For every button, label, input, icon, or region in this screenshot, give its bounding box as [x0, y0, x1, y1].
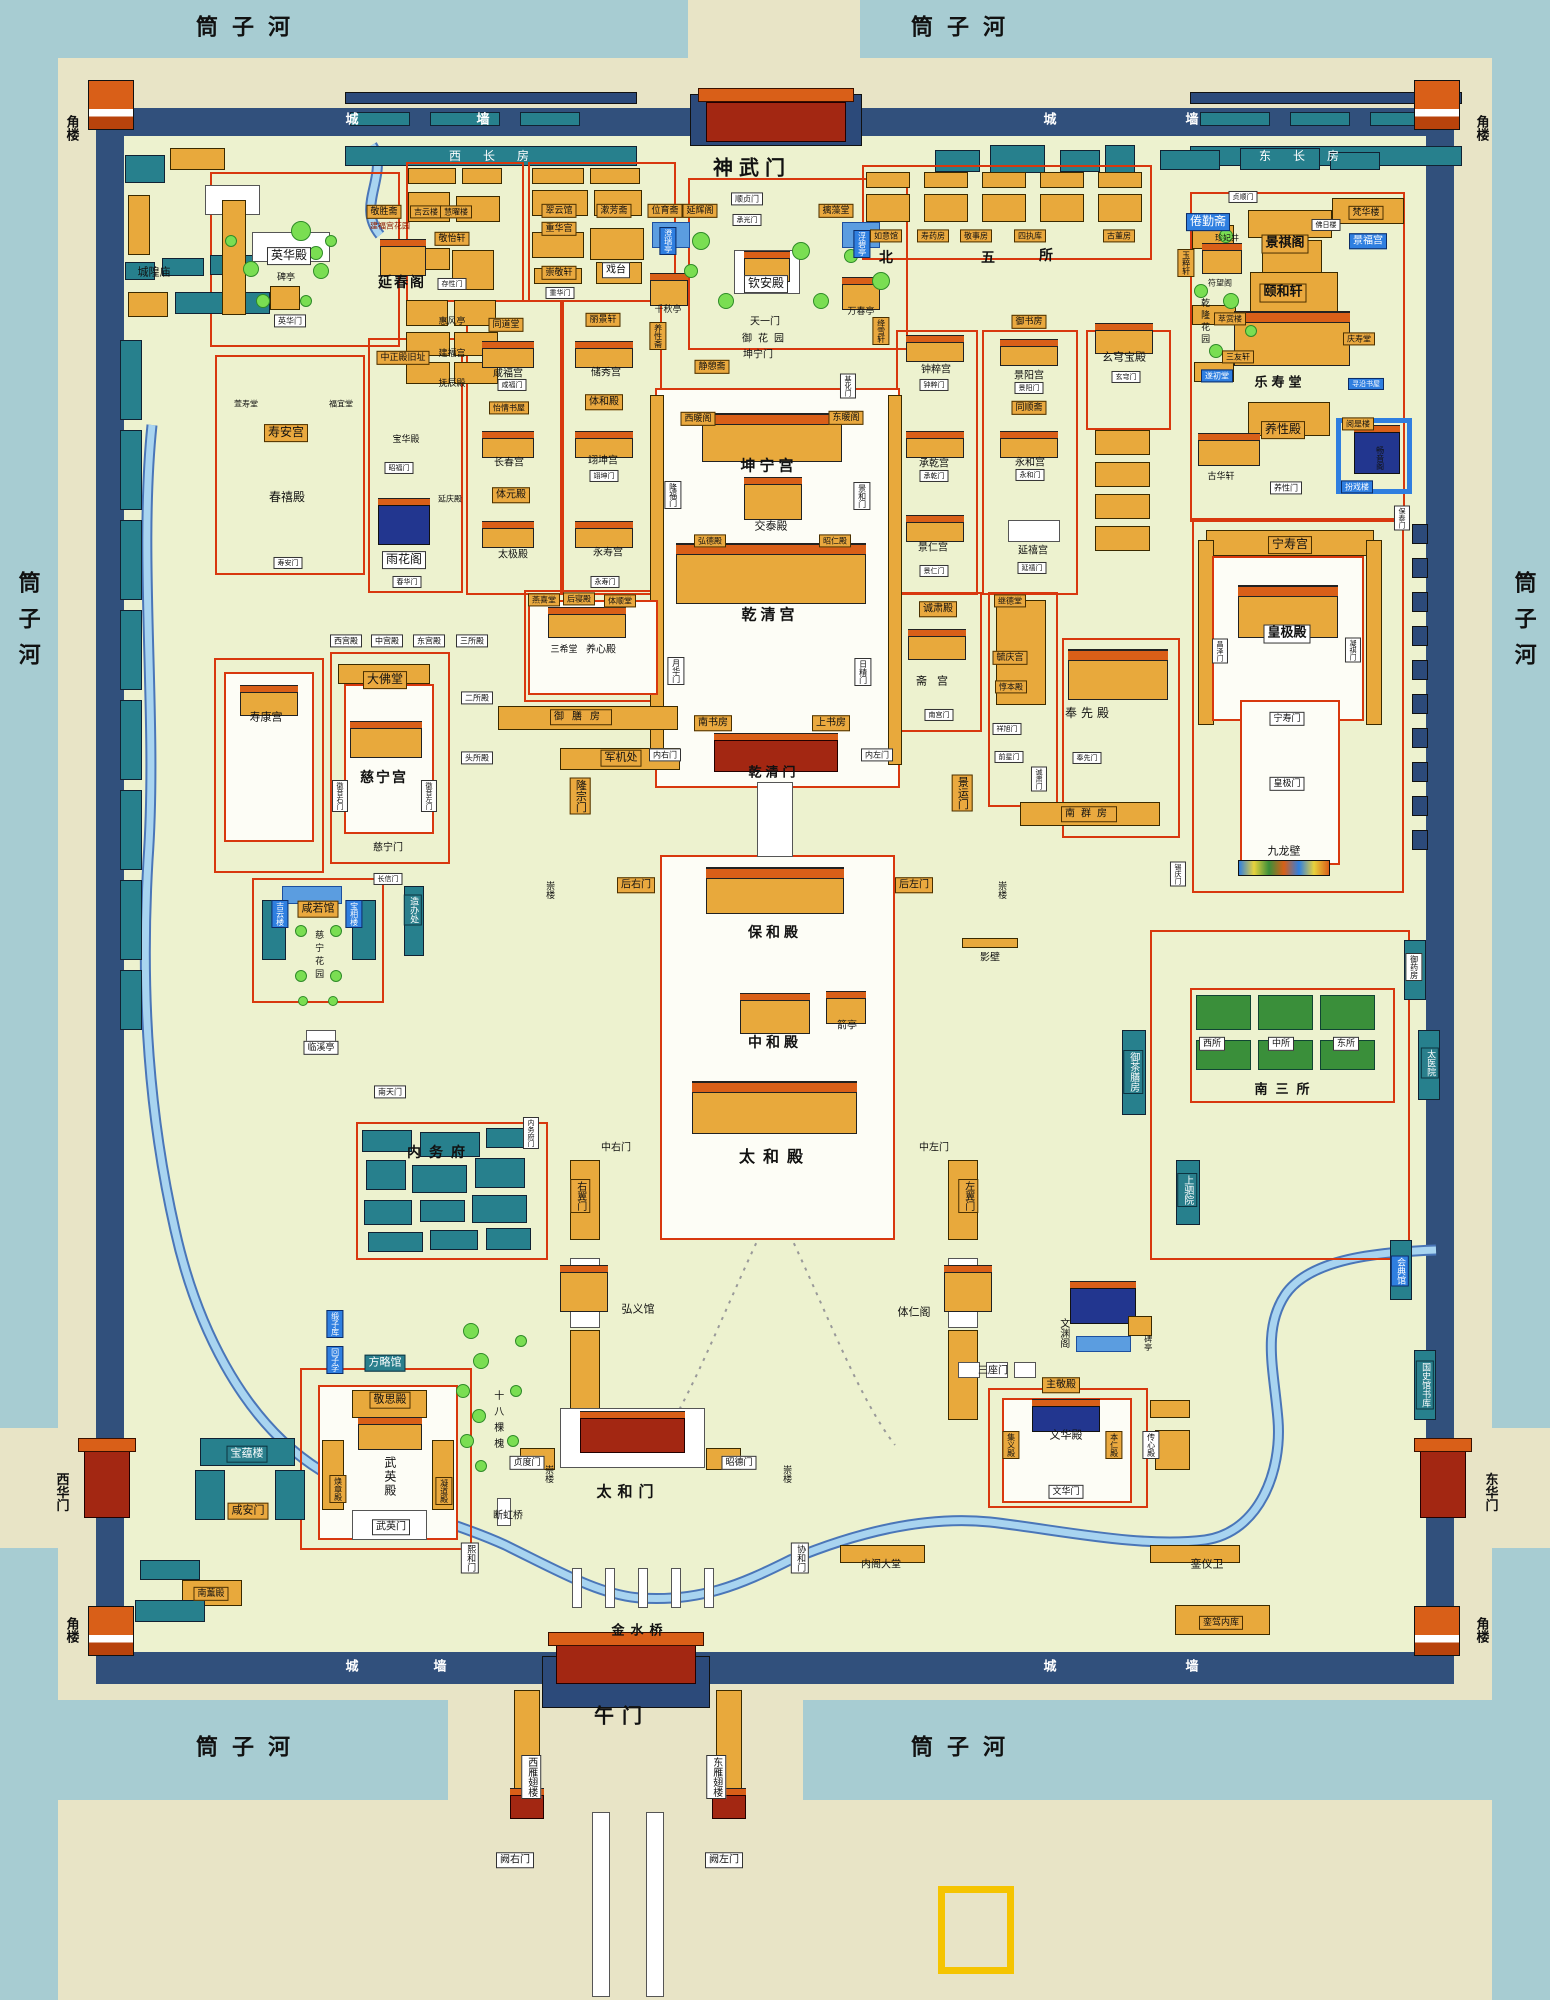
map-label: 如意馆: [870, 229, 902, 242]
map-label: 午门: [594, 1705, 650, 1728]
building-block: [270, 286, 300, 310]
map-label: 碑亭: [277, 273, 295, 283]
building-block: [866, 194, 910, 222]
map-label: 浮碧亭: [853, 230, 870, 258]
map-label: 所: [1039, 248, 1053, 264]
building-block: [125, 155, 165, 183]
map-label: 头所殿: [461, 751, 493, 764]
map-label: 西暖阁: [680, 412, 715, 426]
building-block: [650, 280, 688, 306]
building-block: [215, 355, 365, 575]
map-label: 城: [1043, 114, 1056, 129]
building-block: [1202, 250, 1242, 274]
map-label: 武英殿: [382, 1456, 396, 1498]
map-label: 景福宫: [1349, 233, 1387, 249]
map-label: 雨花阁: [382, 551, 426, 569]
building-block: [275, 1470, 305, 1520]
map-label: 前星门: [995, 751, 1024, 763]
tree-icon: [225, 235, 237, 247]
map-label: 本仁殿: [1105, 1431, 1122, 1459]
building-block: [222, 200, 246, 315]
map-label: 武英门: [372, 1519, 410, 1535]
map-label: 乾隆花园: [1199, 298, 1209, 346]
map-label: 慈宁花园: [313, 930, 323, 982]
map-label: 怡情书屋: [489, 401, 529, 414]
map-label: 养心殿: [586, 644, 616, 656]
map-label: 文华殿: [1050, 1430, 1083, 1443]
map-label: 御膳房: [550, 709, 612, 725]
map-label: 凝祺门: [1345, 638, 1361, 663]
map-label: 南群房: [1061, 806, 1117, 822]
building-block: [706, 102, 846, 142]
map-label: 景阳宫: [1014, 370, 1044, 382]
map-label: 咸安门: [228, 1503, 269, 1520]
building-block: [475, 1158, 525, 1188]
map-label: 体元殿: [492, 487, 530, 503]
map-label: 上书房: [812, 715, 850, 731]
map-label: 凝道殿: [435, 1477, 452, 1505]
building-block: [366, 1160, 406, 1190]
map-label: 寿安门: [274, 557, 303, 569]
map-label: 玄穹门: [1112, 371, 1141, 383]
map-label: 诚肃殿: [919, 601, 957, 617]
map-label: 千秋亭: [654, 305, 681, 315]
map-label: 福宜堂: [329, 399, 353, 408]
map-label: 城: [345, 1661, 358, 1676]
building-block: [1412, 796, 1428, 816]
building-block: [1412, 524, 1428, 544]
map-label: 长信门: [374, 873, 403, 885]
building-block: [84, 1446, 130, 1518]
building-block: [362, 1130, 412, 1152]
map-label: 筒子河: [1510, 571, 1535, 679]
tree-icon: [475, 1460, 487, 1472]
map-label: 皇极门: [1269, 777, 1304, 791]
map-label: 熙和门: [461, 1543, 479, 1574]
tree-icon: [1194, 284, 1208, 298]
building-block: [482, 528, 534, 548]
building-block: [120, 430, 142, 510]
building-block: [556, 1640, 696, 1684]
building-block: [580, 1418, 685, 1453]
map-label: 中正殿旧址: [376, 351, 429, 365]
building-block: [1412, 830, 1428, 850]
building-block: [1412, 660, 1428, 680]
map-label: 筒子河: [911, 15, 1019, 40]
map-label: 延春阁: [378, 275, 426, 291]
building-block: [140, 1560, 200, 1580]
map-label: 东宫殿: [413, 634, 445, 647]
map-label: 十八棵槐: [491, 1390, 503, 1454]
tree-icon: [792, 242, 810, 260]
building-block: [906, 522, 964, 542]
map-label: 太和门: [596, 1483, 659, 1500]
map-label: 三座门: [978, 1365, 1008, 1377]
building-block: [1128, 1316, 1152, 1336]
building-block: [462, 168, 502, 184]
map-label: 英华殿: [267, 247, 311, 265]
building-block: [195, 1470, 225, 1520]
map-label: 角楼: [63, 1617, 78, 1643]
building-block: [412, 1165, 467, 1193]
map-label: 承乾门: [920, 470, 949, 482]
map-label: 保泰门: [1394, 506, 1410, 531]
map-label: 乐寿堂: [1254, 377, 1305, 392]
building-block: [482, 348, 534, 368]
map-label: 宝相楼: [345, 900, 362, 928]
map-label: 寿康宫: [250, 712, 283, 725]
map-label: 军机处: [601, 750, 642, 767]
map-label: 日精门: [854, 658, 871, 686]
map-label: 传心殿: [1142, 1431, 1159, 1459]
building-block: [590, 228, 644, 260]
building-block: [592, 1812, 610, 1997]
map-label: 景仁门: [920, 565, 949, 577]
building-block: [866, 172, 910, 188]
map-label: 漱芳斋: [596, 204, 631, 218]
map-label: 养性门: [1270, 481, 1302, 494]
map-label: 阅是楼: [1342, 417, 1374, 430]
building-block: [1098, 194, 1142, 222]
building-block: [605, 1568, 615, 1608]
map-label: 遂初堂: [1201, 369, 1233, 382]
map-label: 中和殿: [748, 1035, 802, 1051]
map-label: 隆福门: [664, 481, 681, 509]
building-block: [1412, 558, 1428, 578]
map-label: 抚辰殿: [438, 379, 465, 389]
building-block: [368, 1232, 423, 1252]
map-label: 永寿宫: [593, 547, 623, 559]
map-label: 焕章殿: [329, 1475, 346, 1503]
map-label: 景运门: [952, 775, 973, 812]
map-label: 景和门: [853, 482, 870, 510]
building-block: [570, 1330, 600, 1420]
building-block: [1320, 995, 1375, 1030]
building-block: [1040, 172, 1084, 188]
building-block: [1366, 540, 1382, 725]
map-label: 东暖阁: [828, 411, 863, 425]
map-label: 天一门: [750, 316, 780, 328]
map-label: 东雁翅楼: [706, 1755, 726, 1799]
building-block: [744, 484, 802, 520]
map-label: 御药房: [1405, 953, 1422, 981]
building-block: [120, 340, 142, 420]
map-label: 乾清宫: [741, 606, 798, 623]
map-label: 承乾宫: [919, 458, 949, 470]
building-block: [638, 1568, 648, 1608]
map-label: 钟粹宫: [921, 364, 951, 376]
map-label: 三希堂: [550, 645, 577, 655]
map-label: 徽音左门: [421, 780, 437, 812]
map-label: 南书房: [694, 715, 732, 731]
building-block: [706, 878, 844, 914]
map-label: 英华门: [274, 314, 306, 327]
map-label: 绛雪轩: [872, 317, 889, 345]
building-block: [704, 1568, 714, 1608]
map-label: 寿安宫: [264, 424, 308, 442]
map-label: 墙: [476, 114, 489, 129]
map-label: 南薰殿: [193, 1587, 228, 1601]
map-label: 北: [879, 250, 893, 266]
map-label: 月华门: [667, 657, 684, 685]
tree-icon: [463, 1323, 479, 1339]
map-label: 箭亭: [837, 1020, 857, 1032]
map-label: 城: [345, 114, 358, 129]
map-label: 坤宁宫: [740, 457, 797, 474]
building-block: [120, 610, 142, 690]
tree-icon: [295, 970, 307, 982]
building-block: [1098, 172, 1142, 188]
map-label: 筒子河: [196, 1735, 304, 1760]
map-label: 筒子河: [196, 15, 304, 40]
map-label: 继德堂: [994, 594, 1026, 607]
building-block: [1412, 694, 1428, 714]
building-block: [1160, 150, 1220, 170]
map-label: 南宫门: [925, 709, 954, 721]
map-label: 建福宫: [438, 349, 465, 359]
map-label: 静憩斋: [694, 360, 729, 374]
building-block: [1420, 1446, 1466, 1518]
map-label: 太和殿: [739, 1148, 811, 1166]
tree-icon: [330, 925, 342, 937]
map-label: 临溪亭: [303, 1041, 338, 1055]
map-label: 古华轩: [1207, 472, 1234, 482]
tree-icon: [692, 232, 710, 250]
map-label: 永和宫: [1015, 457, 1045, 469]
map-label: 西所: [1199, 1037, 1225, 1051]
map-label: 阙右门: [496, 1852, 534, 1868]
map-label: 重华宫: [541, 222, 576, 236]
building-block: [958, 1362, 980, 1378]
map-label: 延庆殿: [438, 494, 462, 503]
map-label: 祥旭门: [993, 723, 1022, 735]
map-label: 崇楼: [543, 1465, 553, 1483]
map-label: 萃赏楼: [1214, 312, 1246, 325]
map-label: 交泰殿: [755, 521, 788, 534]
forbidden-city-map: 筒子河筒子河筒子河筒子河筒子河筒子河城墙城墙城墙城墙角楼角楼角楼角楼神武门西长房…: [0, 0, 1550, 2000]
map-label: 宁寿门: [1269, 712, 1304, 726]
map-label: 奉先门: [1073, 752, 1102, 764]
building-block: [520, 112, 580, 126]
tree-icon: [325, 235, 337, 247]
map-label: 符望阁: [1208, 278, 1232, 287]
building-block: [120, 970, 142, 1030]
building-block: [1258, 995, 1313, 1030]
building-block: [1196, 995, 1251, 1030]
map-label: 翊坤宫: [588, 455, 618, 467]
map-label: 中所: [1268, 1037, 1294, 1051]
map-label: 国史馆书库: [1416, 1361, 1434, 1410]
map-label: 墙: [433, 1661, 446, 1676]
building-block: [1008, 520, 1060, 542]
map-label: 斋宫: [916, 676, 958, 689]
building-block: [740, 1000, 810, 1034]
building-block: [358, 1424, 422, 1450]
tree-icon: [456, 1384, 470, 1398]
map-label: 坤宁门: [743, 349, 773, 361]
tree-icon: [507, 1435, 519, 1447]
map-label: 珍妃井: [1215, 233, 1239, 242]
map-label: 会典馆: [1391, 1256, 1409, 1287]
map-label: 畅音阁: [1375, 446, 1384, 470]
map-label: 位育斋: [647, 204, 682, 218]
building-block: [908, 636, 966, 660]
map-label: 角楼: [63, 115, 78, 141]
map-label: 重华门: [546, 287, 575, 299]
map-label: 东长房: [1259, 150, 1361, 164]
map-label: 南三所: [1254, 1084, 1317, 1099]
building-block: [350, 728, 422, 758]
tree-icon: [515, 1335, 527, 1347]
building-block: [486, 1228, 531, 1250]
map-label: 崇楼: [781, 1465, 791, 1483]
map-label: 吉云楼: [410, 205, 442, 218]
map-label: 昭仁殿: [819, 534, 851, 547]
map-label: 文华门: [1048, 1485, 1083, 1499]
map-label: 丽景轩: [585, 313, 620, 327]
map-label: 惇本殿: [995, 680, 1027, 693]
tree-icon: [256, 294, 270, 308]
map-label: 影壁: [980, 952, 1000, 964]
map-label: 文渊阁: [1057, 1318, 1069, 1348]
map-label: 协和门: [791, 1543, 809, 1574]
building-block: [1412, 762, 1428, 782]
building-block: [345, 92, 637, 104]
map-label: 筒子河: [14, 571, 39, 679]
map-label: 延辉阁: [682, 204, 717, 218]
map-label: 回子学: [326, 1346, 343, 1374]
map-label: 銮驾内库: [1199, 1616, 1243, 1630]
map-label: 墙: [1185, 1661, 1198, 1676]
building-block: [135, 1600, 205, 1622]
building-block: [364, 1200, 412, 1225]
tree-icon: [330, 970, 342, 982]
map-label: 太极殿: [498, 549, 528, 561]
building-block: [906, 342, 964, 362]
map-label: 角楼: [1473, 1617, 1488, 1643]
building-block: [1150, 1400, 1190, 1418]
building-block: [1414, 1438, 1472, 1452]
map-label: 春禧殿: [269, 491, 305, 505]
map-label: 隆宗门: [570, 778, 591, 815]
building-block: [420, 1200, 465, 1222]
map-label: 中宫殿: [371, 634, 403, 647]
tree-icon: [291, 221, 311, 241]
building-block: [1095, 526, 1150, 551]
map-label: 西华门: [53, 1473, 68, 1512]
map-label: 翊坤门: [590, 470, 619, 482]
building-block: [88, 80, 134, 130]
map-label: 倦勤斋: [1186, 213, 1230, 231]
map-label: 养性斋: [649, 322, 666, 350]
map-label: 缎子库: [326, 1310, 343, 1338]
building-block: [575, 348, 633, 368]
map-label: 西长房: [449, 150, 551, 164]
building-block: [1000, 438, 1058, 458]
map-label: 存性门: [438, 278, 467, 290]
map-label: 四执库: [1014, 229, 1046, 242]
map-label: 弘义馆: [622, 1304, 655, 1317]
map-label: 锡庆门: [1170, 862, 1186, 887]
building-block: [120, 520, 142, 600]
map-label: 主敬殿: [1042, 1377, 1080, 1393]
map-label: 承光门: [733, 214, 762, 226]
map-label: 储秀宫: [591, 367, 621, 379]
tree-icon: [298, 996, 308, 1006]
tree-icon: [300, 295, 312, 307]
map-label: 玄穹宝殿: [1102, 352, 1146, 365]
building-block: [1290, 112, 1350, 126]
building-block: [572, 1568, 582, 1608]
map-label: 古董房: [1103, 229, 1135, 242]
building-block: [906, 438, 964, 458]
tree-icon: [684, 264, 698, 278]
map-label: 敬胜斋: [366, 205, 401, 219]
building-block: [175, 292, 225, 314]
map-label: 钦安殿: [744, 275, 788, 293]
building-block: [560, 1272, 608, 1312]
building-block: [938, 1886, 1014, 1974]
map-label: 内阁大堂: [861, 1559, 901, 1571]
map-label: 后右门: [617, 877, 655, 893]
map-label: 毓庆宫: [992, 651, 1027, 665]
map-label: 御书房: [1011, 315, 1046, 329]
building-block: [1200, 112, 1270, 126]
map-label: 慧曜楼: [440, 205, 472, 218]
tree-icon: [473, 1353, 489, 1369]
map-label: 翠云馆: [541, 204, 576, 218]
building-block: [1076, 1336, 1131, 1352]
map-label: 延禧门: [1018, 562, 1047, 574]
map-label: 奉先殿: [1065, 707, 1113, 721]
building-block: [128, 195, 150, 255]
map-label: 顺贞门: [731, 192, 763, 205]
map-label: 内右门: [649, 748, 681, 761]
map-label: 集义殿: [1002, 1431, 1019, 1459]
map-label: 后寝殿: [563, 592, 595, 605]
map-label: 御茶膳房: [1123, 1050, 1143, 1094]
building-block: [962, 938, 1018, 948]
map-label: 角楼: [1473, 115, 1488, 141]
map-label: 西雁翅楼: [521, 1755, 541, 1799]
building-block: [1095, 462, 1150, 487]
map-label: 寻沿书屋: [1348, 378, 1384, 390]
map-label: 宁寿宫: [1268, 536, 1312, 554]
map-label: 皇极殿: [1263, 625, 1310, 644]
tree-icon: [1209, 344, 1223, 358]
map-label: 太医院: [1421, 1048, 1439, 1079]
tree-icon: [1245, 325, 1257, 337]
map-label: 三友轩: [1222, 350, 1254, 363]
map-label: 崇楼: [544, 881, 554, 899]
building-block: [590, 168, 640, 184]
map-label: 造办处: [404, 895, 422, 926]
map-label: 銮仪卫: [1191, 1559, 1224, 1572]
map-label: 慈宁宫: [360, 770, 408, 786]
building-block: [692, 1092, 857, 1134]
building-block: [944, 1272, 992, 1312]
building-block: [982, 172, 1026, 188]
map-label: 阙左门: [705, 1852, 743, 1868]
map-label: 萱寿堂: [234, 399, 258, 408]
tree-icon: [718, 293, 734, 309]
map-label: 城: [1043, 1661, 1056, 1676]
map-label: 敬思殿: [370, 1392, 411, 1409]
map-label: 敬怡轩: [434, 232, 469, 246]
map-label: 延禧宫: [1018, 545, 1048, 557]
building-block: [1095, 430, 1150, 455]
map-label: 墙: [1185, 114, 1198, 129]
